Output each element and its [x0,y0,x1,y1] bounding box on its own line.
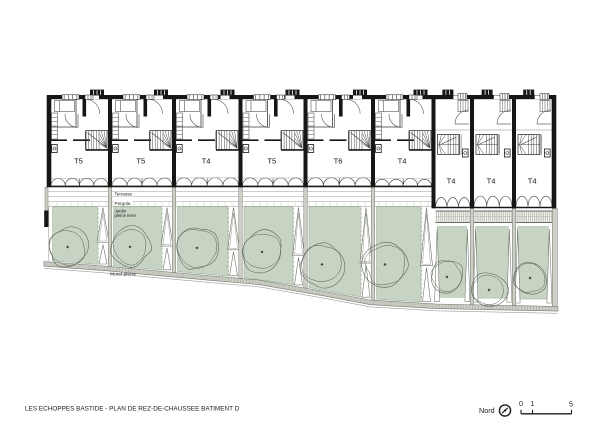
svg-text:Pergola: Pergola [115,201,131,206]
svg-text:T4: T4 [528,177,537,186]
svg-text:Muret pierre: Muret pierre [110,272,136,278]
svg-text:T5: T5 [74,157,83,166]
svg-text:T5: T5 [136,157,145,166]
svg-text:Nord: Nord [479,406,495,415]
svg-text:LES ECHOPPES BASTIDE - PLAN DE: LES ECHOPPES BASTIDE - PLAN DE REZ-DE-CH… [25,406,240,413]
svg-text:1: 1 [531,399,535,408]
svg-text:T5: T5 [267,157,276,166]
svg-text:T4: T4 [202,157,211,166]
svg-text:Terrasse: Terrasse [115,192,133,197]
svg-text:pleine terre: pleine terre [115,213,137,218]
svg-text:T4: T4 [398,157,407,166]
svg-text:0: 0 [519,399,523,408]
svg-text:T4: T4 [447,177,456,186]
svg-text:5: 5 [569,400,573,409]
svg-text:T6: T6 [334,157,343,166]
svg-text:T4: T4 [487,177,496,186]
